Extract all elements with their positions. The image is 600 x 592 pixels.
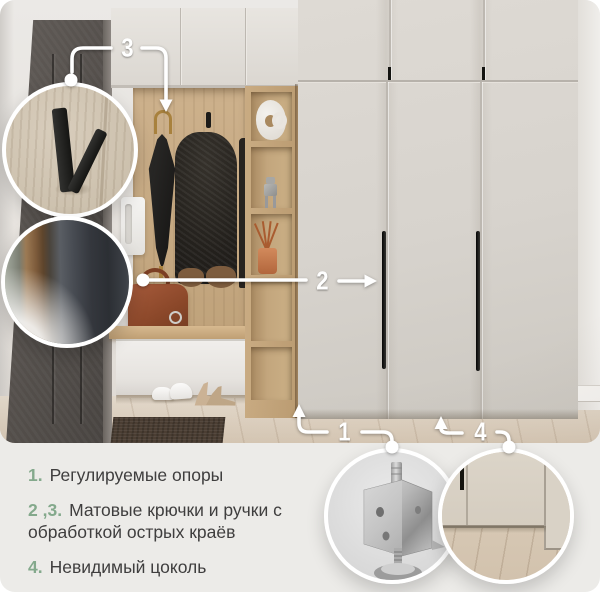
legend-number: 1.	[28, 465, 43, 485]
legend-item-2: 2 ,3.Матовые крючки и ручки с обработкой…	[28, 499, 360, 543]
legend-text: Регулируемые опоры	[50, 465, 224, 485]
product-infographic: 3 2 1 4 1.Регулируемые опоры 2 ,3.Матовы…	[0, 0, 600, 592]
matte-hook-closeup	[2, 82, 138, 218]
matte-handle-closeup	[1, 216, 133, 348]
feature-legend: 1.Регулируемые опоры 2 ,3.Матовые крючки…	[0, 443, 600, 592]
legend-item-1: 1.Регулируемые опоры	[28, 464, 360, 486]
legend-number: 4.	[28, 557, 43, 577]
legend-text: Невидимый цоколь	[50, 557, 207, 577]
legend-item-3: 4.Невидимый цоколь	[28, 556, 360, 578]
handle-profile	[1, 216, 133, 348]
wood-grain	[99, 96, 108, 216]
callout-number-3: 3	[121, 33, 132, 64]
callout-number-2: 2	[316, 266, 327, 297]
legend-text: Матовые крючки и ручки с обработкой остр…	[28, 500, 282, 542]
legend-number: 2 ,3.	[28, 500, 62, 520]
